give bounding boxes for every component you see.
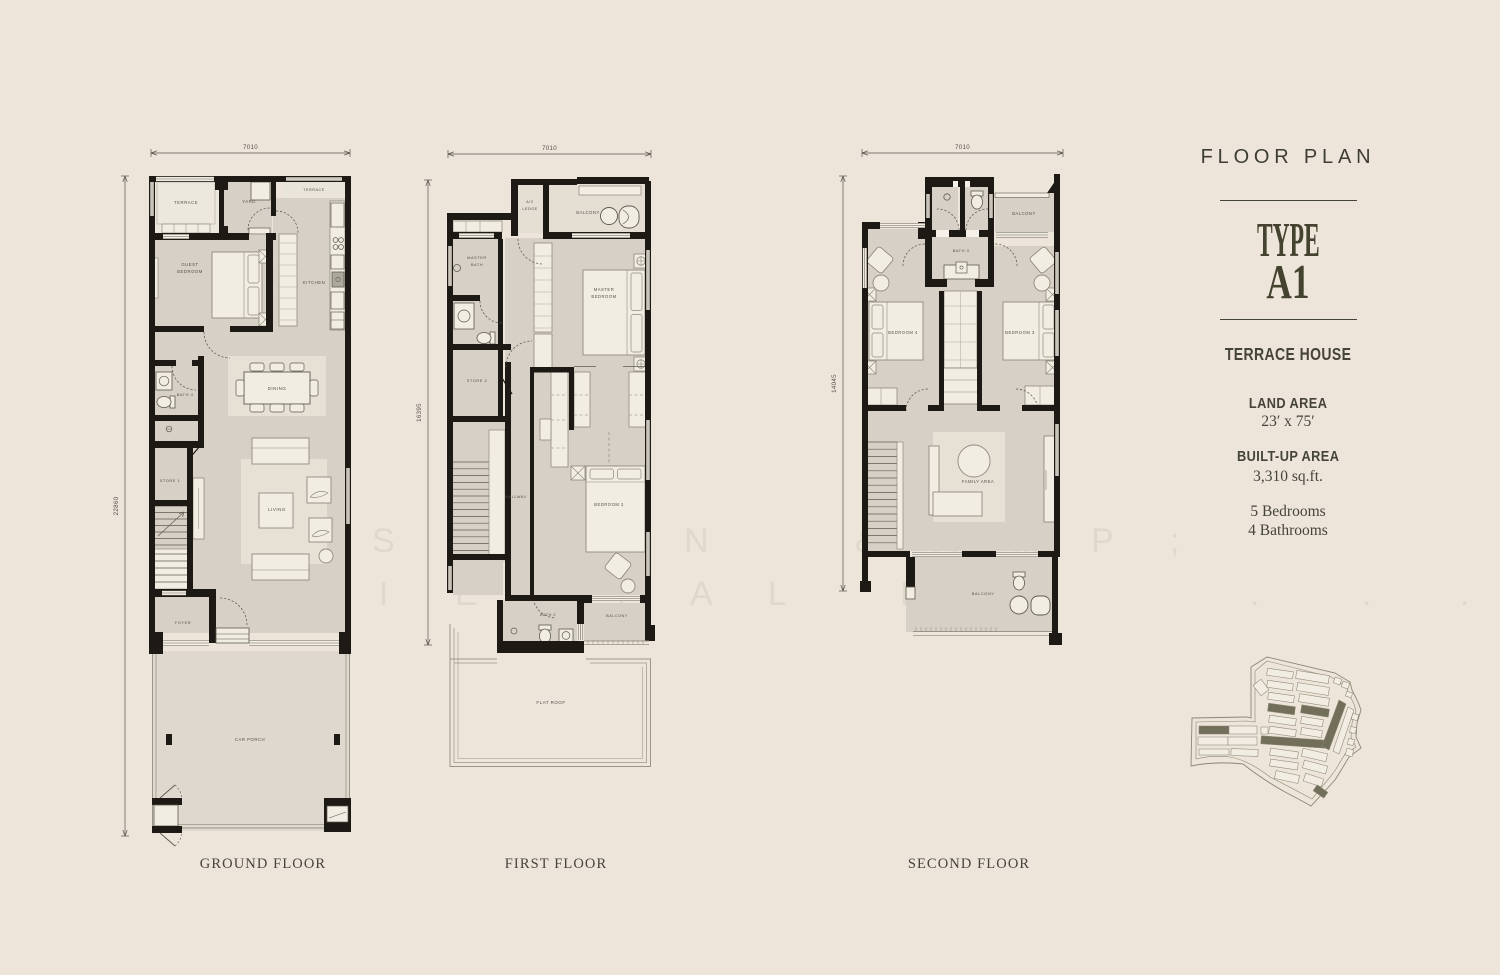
svg-text:BEDROOM 3: BEDROOM 3 — [1005, 330, 1035, 335]
svg-text:7010: 7010 — [542, 145, 557, 152]
svg-text:DINING: DINING — [268, 386, 287, 391]
svg-text:BATH 2: BATH 2 — [540, 613, 556, 617]
svg-text:BEDROOM 4: BEDROOM 4 — [888, 330, 918, 335]
svg-text:YARD: YARD — [242, 199, 256, 204]
svg-text:22860: 22860 — [113, 496, 120, 515]
svg-text:A/C: A/C — [526, 200, 534, 204]
svg-text:LEDGE: LEDGE — [522, 207, 537, 211]
svg-text:BEDROOM: BEDROOM — [591, 294, 616, 299]
svg-text:BALCONY: BALCONY — [606, 614, 628, 618]
svg-text:7010: 7010 — [243, 144, 258, 151]
svg-text:GUEST: GUEST — [181, 262, 198, 267]
svg-text:FLAT ROOF: FLAT ROOF — [536, 700, 565, 705]
svg-text:FOYER: FOYER — [175, 620, 191, 625]
svg-text:16395: 16395 — [416, 403, 423, 422]
svg-text:BALCONY: BALCONY — [576, 210, 600, 215]
svg-text:BATH 3: BATH 3 — [953, 248, 970, 253]
svg-text:MASTER: MASTER — [467, 255, 487, 260]
svg-text:TERRACE: TERRACE — [174, 200, 198, 205]
svg-text:STORE 2: STORE 2 — [467, 378, 488, 383]
svg-text:7010: 7010 — [955, 144, 970, 151]
svg-text:BATH 4: BATH 4 — [177, 392, 194, 397]
svg-text:CAR PORCH: CAR PORCH — [235, 737, 265, 742]
svg-text:MASTER: MASTER — [594, 287, 614, 292]
svg-text:KITCHEN: KITCHEN — [303, 280, 325, 285]
svg-text:BATH: BATH — [471, 262, 483, 267]
svg-text:BEDROOM 2: BEDROOM 2 — [594, 502, 624, 507]
svg-text:STORE 1: STORE 1 — [160, 478, 181, 483]
svg-text:BALCONY: BALCONY — [1012, 211, 1036, 216]
svg-text:HALLWAY: HALLWAY — [505, 494, 527, 499]
svg-text:BALCONY: BALCONY — [972, 591, 995, 596]
svg-text:FAMILY AREA: FAMILY AREA — [962, 479, 994, 484]
svg-text:14045: 14045 — [831, 374, 838, 393]
svg-text:BEDROOM: BEDROOM — [177, 269, 203, 274]
svg-text:LIVING: LIVING — [268, 507, 286, 512]
svg-text:TERRACE: TERRACE — [303, 188, 325, 192]
